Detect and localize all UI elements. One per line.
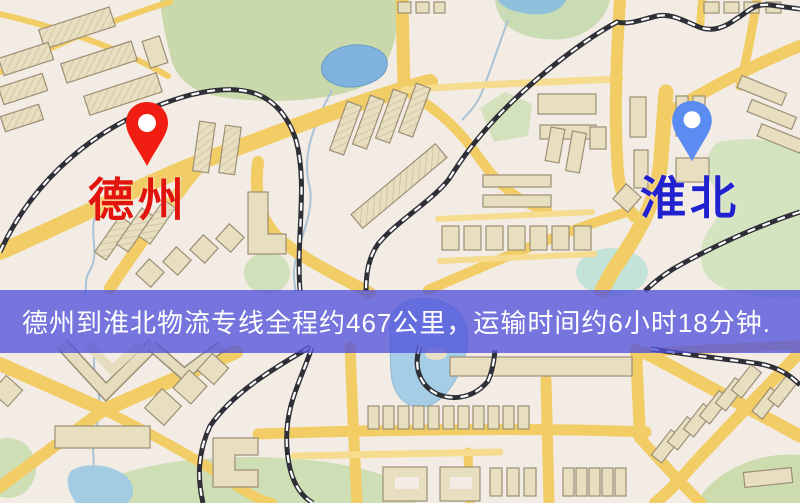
origin-pin-icon — [123, 100, 171, 170]
origin-label: 德州 — [88, 177, 188, 223]
route-banner: 德州到淮北物流专线全程约467公里，运输时间约6小时18分钟. — [0, 290, 800, 353]
logistics-map-image: 德州 淮北 德州到淮北物流专线全程约467公里，运输时间约6小时18分钟. — [0, 0, 800, 503]
route-banner-text: 德州到淮北物流专线全程约467公里，运输时间约6小时18分钟. — [0, 303, 771, 340]
destination-label: 淮北 — [640, 175, 740, 221]
destination-pin-icon — [669, 99, 715, 165]
destination-pin-body — [672, 101, 712, 161]
map-canvas — [0, 0, 800, 503]
origin-pin-body — [126, 102, 168, 166]
